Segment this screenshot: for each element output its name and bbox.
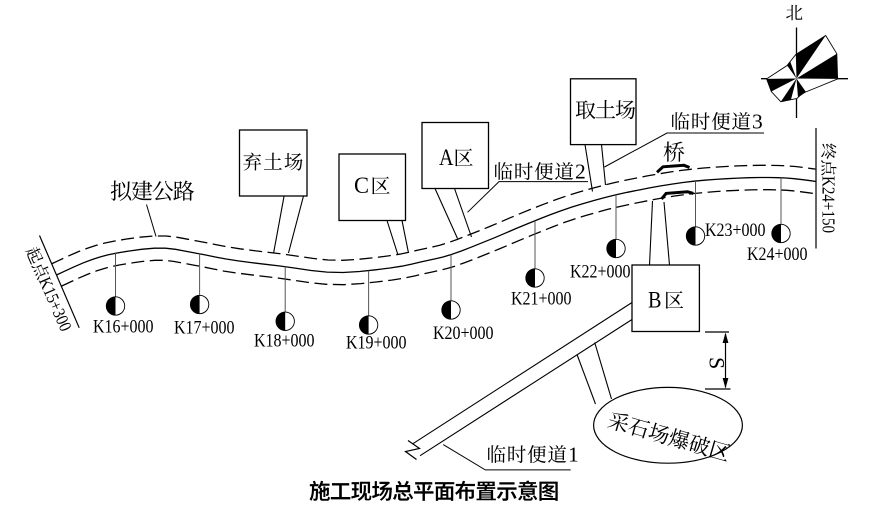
svg-text:K17+000: K17+000 [174,319,235,339]
svg-text:K19+000: K19+000 [346,334,407,354]
svg-text:K16+000: K16+000 [93,318,154,338]
svg-text:K24+150: K24+150 [819,176,839,233]
svg-text:K18+000: K18+000 [254,332,315,352]
svg-text:3: 3 [752,110,763,134]
svg-text:C: C [354,173,369,198]
svg-text:K23+000: K23+000 [705,221,766,241]
svg-text:S: S [705,357,730,369]
svg-text:A: A [439,145,454,170]
svg-text:2: 2 [575,160,586,184]
svg-text:K22+000: K22+000 [570,263,631,283]
svg-text:K24+000: K24+000 [747,245,808,265]
svg-text:1: 1 [568,443,579,467]
svg-text:K21+000: K21+000 [511,290,572,310]
svg-text:K20+000: K20+000 [433,324,494,344]
svg-text:B: B [648,288,662,313]
